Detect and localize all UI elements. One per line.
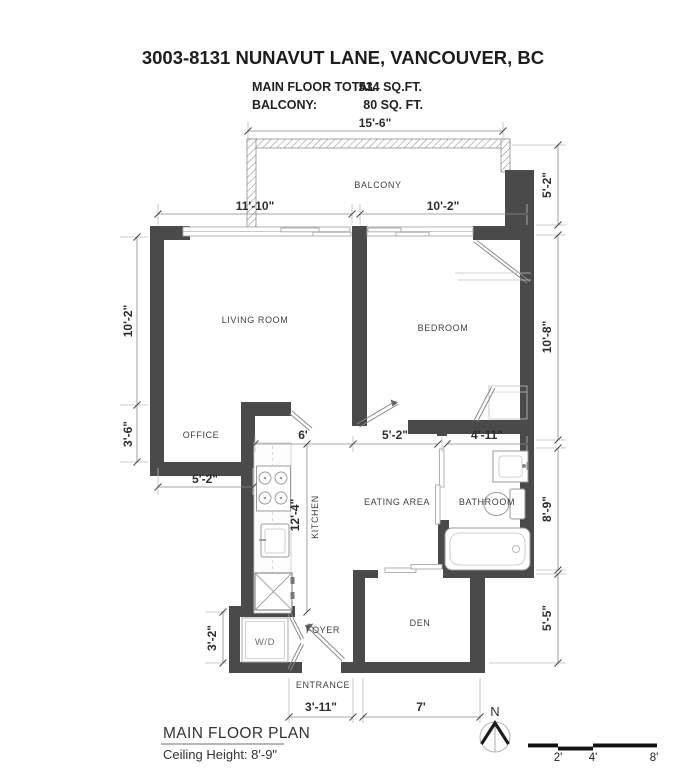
north-compass-icon: N [480, 704, 510, 752]
room-label-washer-dryer: W/D [255, 637, 275, 648]
room-label-living-room: LIVING ROOM [222, 315, 289, 325]
room-label-den: DEN [410, 618, 431, 628]
wall-segment [352, 226, 367, 426]
bedroom-closet-bottom [474, 386, 527, 422]
area-row-value: 80 SQ. FT. [363, 98, 423, 112]
dim-den-width: 7' [360, 700, 484, 721]
svg-text:3'-6": 3'-6" [121, 421, 135, 447]
washer-dryer-closet-doors [288, 613, 304, 671]
bathroom-sliding-door [436, 449, 445, 524]
svg-text:8'-9": 8'-9" [540, 496, 554, 522]
wall-segment [353, 662, 485, 673]
dim-bedroom-width: 10'-2" [357, 199, 531, 218]
svg-text:5'-2": 5'-2" [540, 172, 554, 198]
svg-text:3'-11": 3'-11" [305, 700, 337, 714]
area-row-value: 534 SQ.FT. [359, 80, 422, 94]
area-row-label: BALCONY: [252, 98, 317, 112]
dim-right-top: 5'-2" [540, 142, 562, 229]
dim-bathroom-height: 8'-9" [540, 445, 562, 574]
scale-tick-label: 4' [589, 752, 598, 764]
wall-segment [150, 226, 164, 476]
plan-title: MAIN FLOOR PLAN [163, 725, 310, 742]
dimensions-layer: 15'-6" 11'-10" 10'-2" 10'-2" 3'-6" 5'-2" [121, 116, 562, 721]
room-label-office: OFFICE [183, 430, 220, 440]
svg-text:10'-2": 10'-2" [121, 305, 135, 338]
wall-segment [470, 578, 485, 673]
svg-text:6': 6' [298, 428, 308, 442]
room-label-eating-area: EATING AREA [364, 497, 430, 507]
dim-bedroom-height: 10'-8" [540, 232, 562, 444]
dim-wd-height: 3'-2" [205, 609, 227, 667]
dim-office-height: 3'-6" [121, 405, 141, 466]
room-label-balcony: BALCONY [354, 180, 401, 190]
bedroom-window [367, 227, 473, 236]
svg-text:5'-2": 5'-2" [192, 472, 218, 486]
scale-tick-label: 8' [650, 752, 659, 764]
wall-segment [353, 570, 365, 673]
svg-text:4'-11": 4'-11" [471, 428, 503, 442]
room-label-kitchen: KITCHEN [310, 495, 320, 539]
bathtub-fixture [445, 528, 530, 570]
windows-layer [183, 227, 473, 236]
svg-text:5'-2": 5'-2" [382, 428, 408, 442]
bathroom-vanity-sink-fixture [493, 451, 528, 482]
plan-header: 3003-8131 NUNAVUT LANE, VANCOUVER, BC MA… [142, 47, 544, 112]
svg-text:11'-10": 11'-10" [236, 199, 275, 213]
dim-den-height: 5'-5" [540, 571, 562, 667]
svg-text:10'-2": 10'-2" [427, 199, 460, 213]
floor-plan-page: 3003-8131 NUNAVUT LANE, VANCOUVER, BC MA… [0, 0, 687, 768]
svg-text:7': 7' [416, 700, 426, 714]
stove-fixture [257, 466, 291, 511]
svg-text:12'-4": 12'-4" [288, 499, 302, 532]
living-room-window [183, 227, 351, 236]
room-label-foyer: FOYER [306, 625, 340, 635]
plan-footer: MAIN FLOOR PLAN Ceiling Height: 8'-9" N … [161, 704, 658, 764]
scale-tick-label: 2' [554, 752, 563, 764]
scale-bar: 2' 4' 8' [528, 744, 658, 765]
wall-segment [241, 402, 255, 613]
floor-plan-canvas: 3003-8131 NUNAVUT LANE, VANCOUVER, BC MA… [0, 0, 687, 768]
page-title: 3003-8131 NUNAVUT LANE, VANCOUVER, BC [142, 47, 544, 68]
dim-living-height: 10'-2" [121, 234, 141, 409]
ceiling-height-note: Ceiling Height: 8'-9" [163, 747, 277, 762]
wall-segment [353, 570, 378, 578]
dim-entrance-width: 3'-11" [286, 700, 357, 721]
dim-balcony-width: 15'-6" [245, 116, 507, 135]
room-label-bedroom: BEDROOM [418, 323, 469, 333]
room-label-bathroom: BATHROOM [459, 497, 515, 507]
walls-layer [150, 170, 534, 673]
wall-segment [437, 420, 447, 436]
den-sliding-door [385, 565, 442, 573]
svg-text:3'-2": 3'-2" [205, 625, 219, 651]
fixtures-layer [242, 241, 531, 671]
compass-north-label: N [490, 704, 499, 719]
room-label-entrance: ENTRANCE [296, 680, 350, 690]
svg-text:10'-8": 10'-8" [540, 321, 554, 354]
svg-text:15'-6": 15'-6" [359, 116, 392, 130]
plan-title-block: MAIN FLOOR PLAN Ceiling Height: 8'-9" [161, 725, 310, 762]
kitchen-sink-fixture [259, 524, 289, 557]
fridge-fixture [255, 573, 295, 610]
bedroom-closet-top [455, 241, 531, 284]
wall-segment [408, 420, 527, 434]
svg-text:5'-5": 5'-5" [540, 605, 554, 631]
